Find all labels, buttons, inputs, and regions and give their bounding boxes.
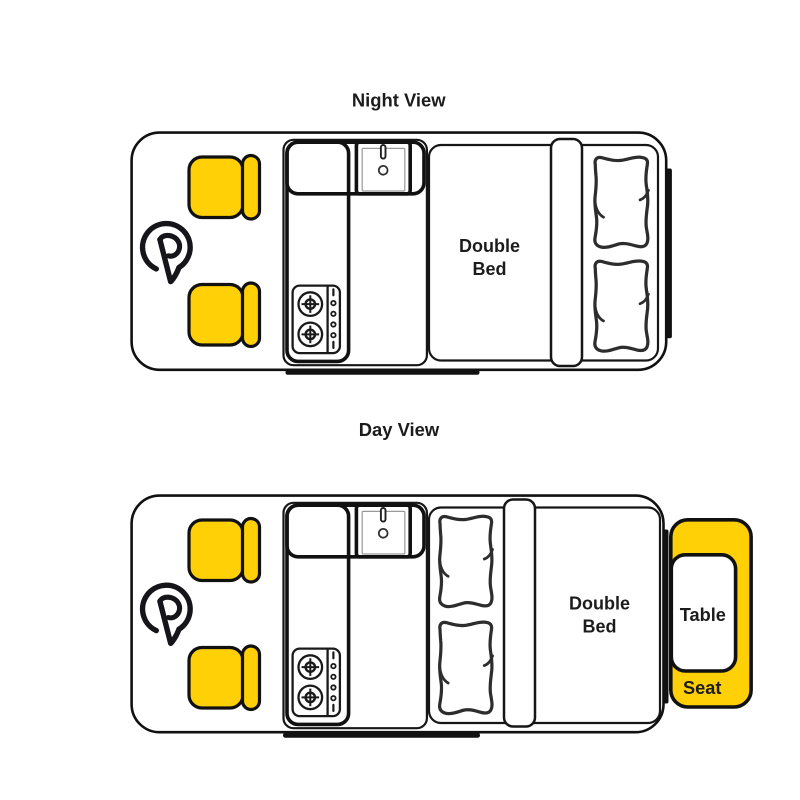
svg-text:Bed: Bed <box>582 617 616 637</box>
svg-text:Day View: Day View <box>359 419 440 440</box>
svg-text:Table: Table <box>680 605 726 625</box>
svg-text:Seat: Seat <box>683 678 721 698</box>
svg-text:Double: Double <box>459 236 520 256</box>
svg-text:Bed: Bed <box>472 259 506 279</box>
svg-text:Double: Double <box>569 594 630 614</box>
svg-text:Night View: Night View <box>352 90 446 111</box>
